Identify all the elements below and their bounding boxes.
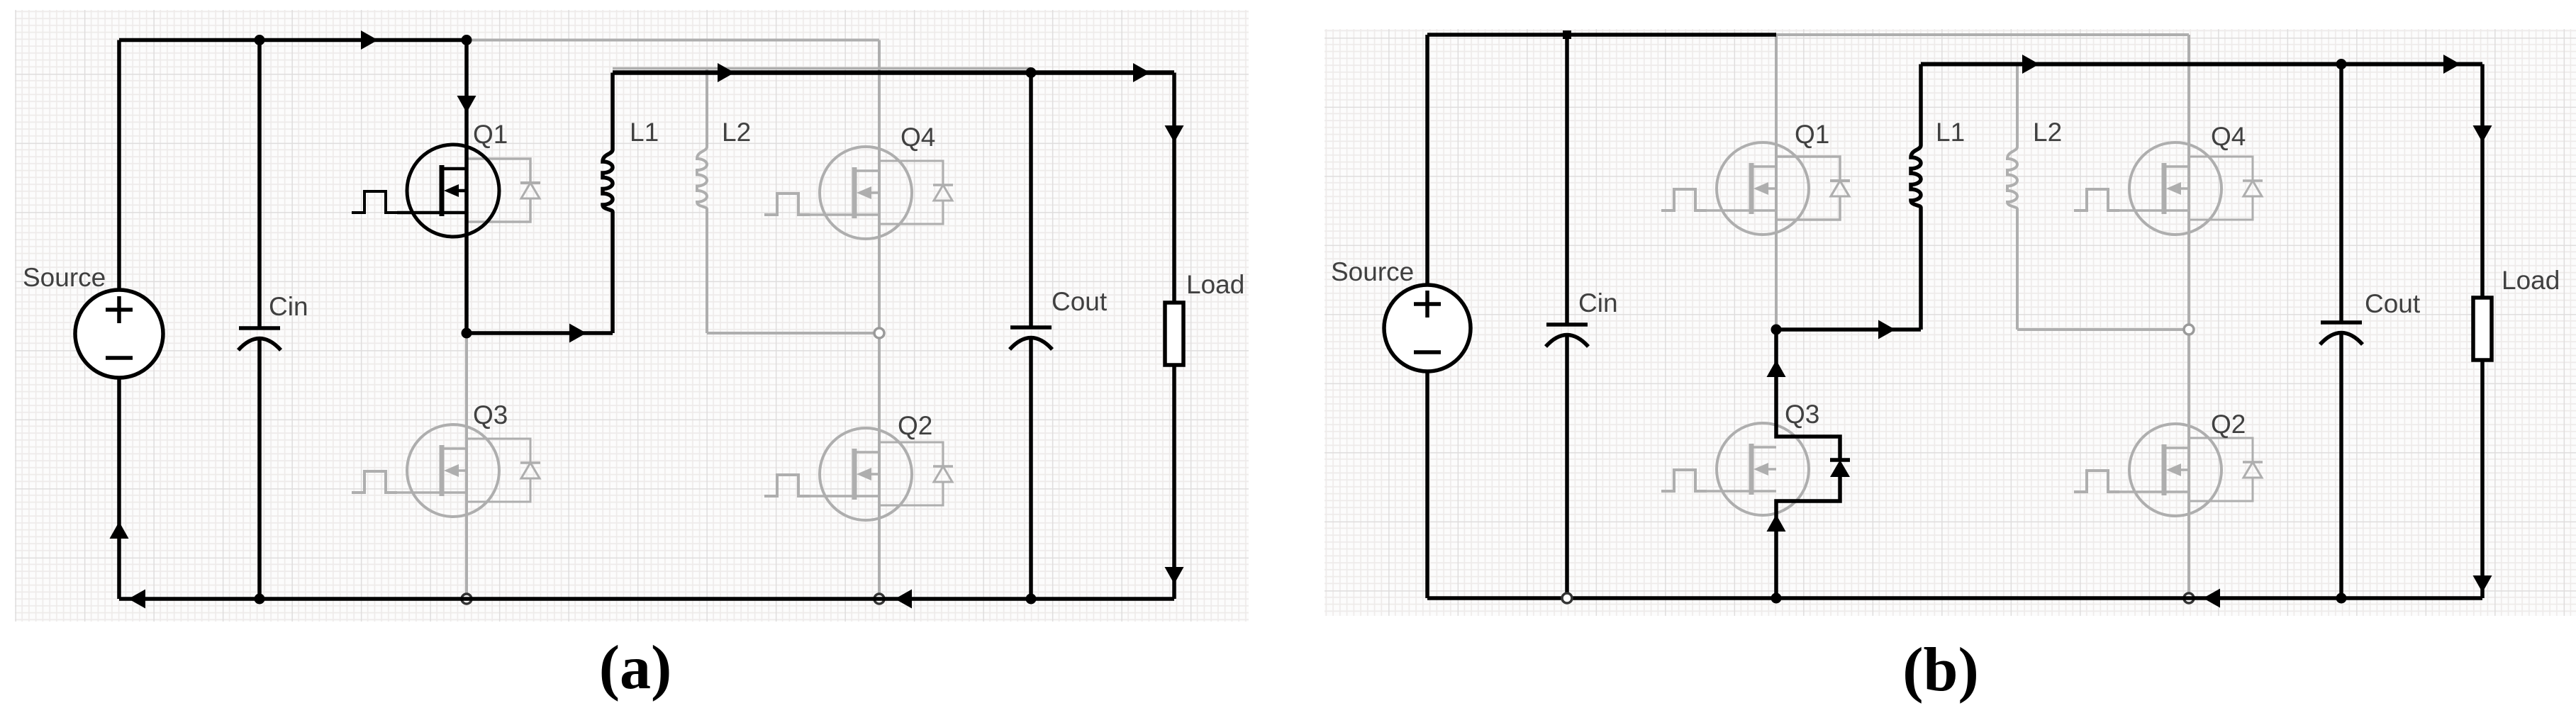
svg-text:(a): (a): [599, 634, 672, 702]
svg-text:Cout: Cout: [1052, 287, 1108, 316]
svg-text:(b): (b): [1902, 636, 1979, 704]
svg-text:Q2: Q2: [2211, 410, 2246, 439]
svg-text:L2: L2: [722, 118, 751, 147]
svg-text:Load: Load: [1186, 270, 1244, 299]
svg-text:Q4: Q4: [2211, 122, 2246, 151]
svg-text:Q3: Q3: [473, 400, 508, 429]
svg-text:L2: L2: [2033, 118, 2062, 147]
svg-text:Q2: Q2: [898, 411, 932, 440]
svg-text:Q1: Q1: [1795, 120, 1829, 149]
svg-text:Source: Source: [1331, 257, 1414, 286]
svg-text:L1: L1: [630, 118, 659, 147]
svg-text:L1: L1: [1936, 118, 1965, 147]
svg-text:Load: Load: [2502, 266, 2560, 295]
svg-text:Q4: Q4: [901, 123, 935, 152]
svg-text:Q3: Q3: [1785, 400, 1819, 429]
svg-text:Cin: Cin: [1578, 288, 1618, 318]
svg-text:Source: Source: [23, 263, 106, 292]
svg-text:Cin: Cin: [269, 292, 308, 321]
svg-text:Cout: Cout: [2365, 289, 2421, 318]
svg-text:Q1: Q1: [473, 120, 508, 149]
